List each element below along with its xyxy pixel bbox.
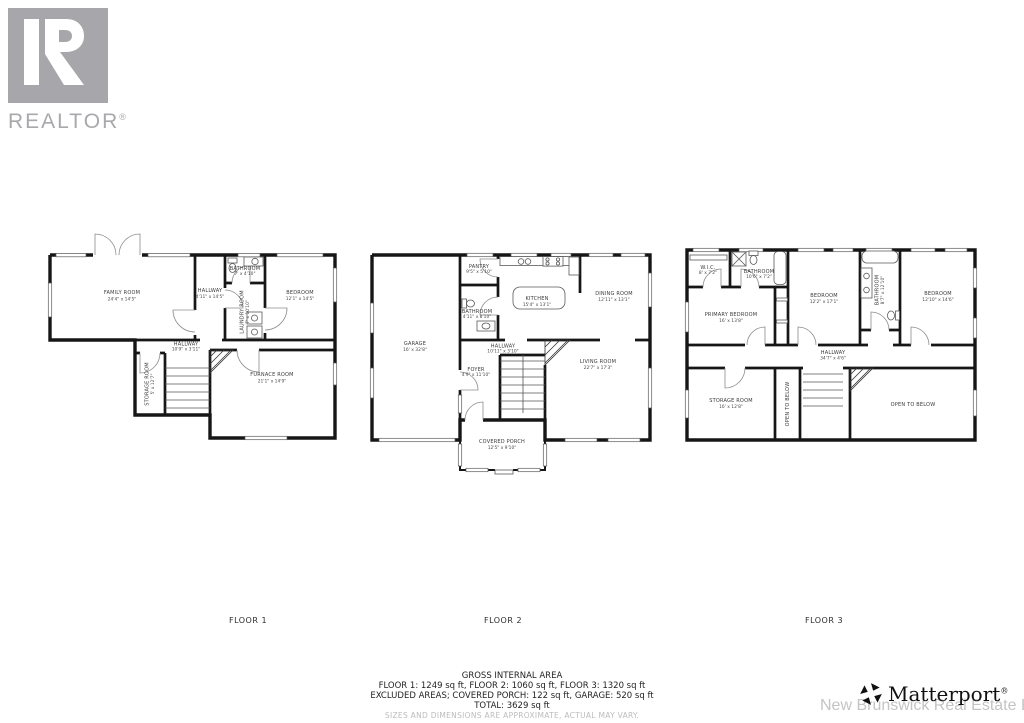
room-label: FAMILY ROOM <box>104 290 140 296</box>
realtor-registered-icon: ® <box>119 112 128 122</box>
room-label: LIVING ROOM <box>580 359 616 365</box>
room-dims: 12'1" x 14'5" <box>286 296 315 302</box>
realtor-wordmark: REALTOR® <box>8 110 138 134</box>
bathtub-icon <box>862 251 898 263</box>
floor-3-understair-hatch <box>850 368 873 391</box>
matterport-logo: Matterport® <box>858 681 1008 707</box>
room-label-rotated: STORAGE ROOM 5' x 12'7" <box>145 362 157 405</box>
floor-1-plan: FAMILY ROOM 24'4" x 14'5" HALLWAY 4'11" … <box>40 228 340 458</box>
room-dims: 22'7" x 17'3" <box>584 365 613 371</box>
room-dims: 34'7" x 4'6" <box>820 356 846 362</box>
toilet-icon <box>467 300 475 307</box>
fridge-icon <box>569 257 579 275</box>
realtor-r-mark <box>8 8 108 104</box>
floor-2-stairs <box>500 355 545 413</box>
room-label: HALLWAY <box>821 350 846 356</box>
toilet-icon <box>749 251 758 256</box>
matterport-registered-icon: ® <box>1000 686 1008 695</box>
stove-burner-icon <box>556 262 559 265</box>
room-label: BATHROOM <box>875 275 881 306</box>
room-label-rotated: BATHROOM 8'7" x 12'10" <box>875 275 887 306</box>
floor-1-stairs <box>165 368 210 408</box>
room-label: BEDROOM <box>810 293 838 299</box>
vanity-icon <box>861 268 872 298</box>
room-dims: 7' x 10'10" <box>245 300 251 324</box>
floor-1-caption: FLOOR 1 <box>188 616 308 625</box>
porch-step <box>495 470 513 474</box>
floor-3-plan: W.I.C. 8' x 7'2" BATHROOM 10'6" x 7'2" P… <box>683 240 980 445</box>
room-dims: 10'11" x 3'10" <box>487 349 518 355</box>
room-dims: 12'10" x 14'6" <box>922 297 953 303</box>
room-label: OPEN TO BELOW <box>891 402 936 408</box>
room-dims: 24'4" x 14'5" <box>108 297 137 303</box>
room-dims: 4'11" x 14'5" <box>196 294 225 300</box>
room-label: PRIMARY BEDROOM <box>705 312 758 318</box>
realtor-word: REALTOR <box>8 110 119 133</box>
realtor-logo: REALTOR® <box>8 8 138 134</box>
sink-icon <box>252 258 258 264</box>
floor-3-caption: FLOOR 3 <box>764 616 884 625</box>
room-dims: 16' x 13'8" <box>719 318 743 324</box>
room-dims: 12'5" x 9'10" <box>488 445 517 451</box>
floor-1-understair-hatch <box>210 350 233 373</box>
room-label-rotated: OPEN TO BELOW <box>785 382 791 427</box>
room-label: STORAGE ROOM <box>145 362 151 405</box>
floor-2-plan: PANTRY 9'5" x 5'10" BATHROOM 4'11" x 8'1… <box>365 243 660 478</box>
sink-icon <box>864 273 870 279</box>
washer-icon <box>252 315 258 321</box>
room-dims: 15'4" x 13'1" <box>523 302 552 308</box>
floor-3-closet-doors <box>777 298 788 323</box>
sink-icon <box>482 323 490 329</box>
summary-title: GROSS INTERNAL AREA <box>0 671 1024 681</box>
floor-3-inner-walls <box>687 250 975 440</box>
room-dims: 16' x 32'8" <box>403 347 427 353</box>
sink-icon <box>864 287 870 293</box>
room-dims: 21'1" x 14'9" <box>258 379 287 385</box>
toilet-icon <box>228 258 237 263</box>
room-dims: 5' x 12'7" <box>150 374 156 395</box>
toilet-icon <box>462 299 467 308</box>
floor-3-fixtures <box>690 251 900 320</box>
room-label: OPEN TO BELOW <box>785 382 791 427</box>
floor-3-stairs <box>803 374 843 406</box>
closet-shelf-icon <box>690 255 727 260</box>
room-dims: 8' x 7'2" <box>699 270 717 276</box>
toilet-icon <box>750 256 757 265</box>
toilet-icon <box>888 311 895 320</box>
room-dims: 4'11" x 8'10" <box>463 314 492 320</box>
toilet-icon <box>896 311 900 320</box>
matterport-word: Matterport <box>888 682 1000 706</box>
room-label: LAUNDRY ROOM <box>240 290 246 333</box>
floor-2-inner-walls <box>460 255 650 440</box>
room-label: GARAGE <box>404 341 426 347</box>
room-dims: 10'9" x 3'11" <box>172 347 201 353</box>
realtor-r-counter <box>59 30 72 42</box>
matterport-pinwheel-icon <box>858 681 884 707</box>
stove-burner-icon <box>546 262 549 265</box>
stove-burner-icon <box>556 258 559 261</box>
room-dims: 9'5" x 5'10" <box>466 269 492 275</box>
room-dims: 16' x 12'8" <box>719 404 743 410</box>
room-label: BEDROOM <box>286 290 314 296</box>
room-label: COVERED PORCH <box>479 439 525 445</box>
room-dims: 8'7" x 12'10" <box>880 276 886 305</box>
floor-1-inner-walls <box>135 255 335 415</box>
dryer-icon <box>252 329 258 335</box>
floor-2-caption: FLOOR 2 <box>443 616 563 625</box>
kitchen-sink-icon <box>518 259 524 265</box>
room-label: HALLWAY <box>198 288 223 294</box>
room-dims: 10'6" x 7'2" <box>746 274 772 280</box>
stove-burner-icon <box>546 258 549 261</box>
room-dims: 7' x 4'10" <box>235 271 256 277</box>
floor-2-fireplace-hatch <box>545 340 570 365</box>
room-label: FURNACE ROOM <box>250 372 293 378</box>
bathtub-icon <box>774 252 786 285</box>
realtor-r-bar <box>24 19 39 85</box>
room-dims: 12'11" x 13'1" <box>598 297 629 303</box>
room-label: BEDROOM <box>924 291 952 297</box>
kitchen-sink-icon <box>525 259 531 265</box>
room-label: DINING ROOM <box>595 291 633 297</box>
room-label: STORAGE ROOM <box>709 398 752 404</box>
room-dims: 12'2" x 17'1" <box>810 299 839 305</box>
matterport-wordmark: Matterport® <box>888 682 1008 706</box>
room-dims: 4'9" x 11'10" <box>462 372 491 378</box>
kitchen-counter-icon <box>500 257 578 266</box>
room-label: KITCHEN <box>525 296 548 302</box>
